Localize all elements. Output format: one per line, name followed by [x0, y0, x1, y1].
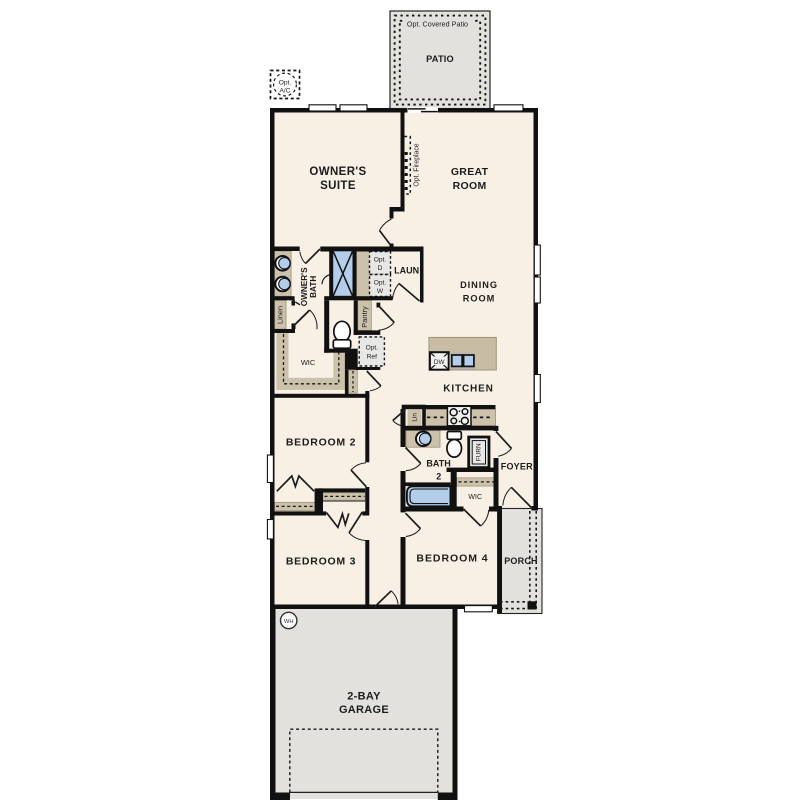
- svg-text:WIC: WIC: [468, 494, 482, 501]
- svg-text:BATH: BATH: [309, 276, 318, 298]
- svg-text:FURN: FURN: [476, 443, 483, 461]
- svg-text:2-BAY: 2-BAY: [347, 690, 381, 702]
- svg-text:Opt.: Opt.: [374, 280, 387, 287]
- svg-text:2: 2: [436, 471, 441, 481]
- svg-text:ROOM: ROOM: [463, 294, 495, 304]
- svg-text:Opt. Fireplace: Opt. Fireplace: [413, 143, 420, 186]
- svg-text:GARAGE: GARAGE: [339, 704, 389, 716]
- svg-text:FOYER: FOYER: [501, 461, 533, 471]
- svg-text:Opt. Covered Patio: Opt. Covered Patio: [407, 20, 468, 29]
- svg-text:ROOM: ROOM: [453, 180, 487, 192]
- svg-text:WIC: WIC: [301, 358, 316, 367]
- svg-text:WH: WH: [284, 619, 294, 625]
- svg-text:Ref: Ref: [367, 354, 377, 361]
- svg-text:LAUN: LAUN: [394, 265, 419, 275]
- svg-text:Opt.: Opt.: [366, 345, 379, 352]
- svg-text:BATH: BATH: [426, 459, 450, 469]
- svg-text:Opt.: Opt.: [279, 80, 292, 87]
- svg-text:W: W: [377, 288, 384, 295]
- svg-text:OWNER'S: OWNER'S: [309, 166, 366, 178]
- svg-text:DINING: DINING: [460, 280, 498, 290]
- svg-text:D: D: [378, 265, 383, 272]
- svg-text:GREAT: GREAT: [451, 166, 489, 178]
- svg-text:KITCHEN: KITCHEN: [443, 383, 493, 394]
- svg-text:SUITE: SUITE: [320, 180, 356, 192]
- svg-text:A/C: A/C: [280, 88, 291, 95]
- svg-text:Lin: Lin: [411, 413, 418, 422]
- svg-text:Linen: Linen: [276, 306, 285, 324]
- svg-text:OWNER'S: OWNER'S: [300, 267, 309, 306]
- svg-text:DW: DW: [434, 359, 446, 366]
- svg-text:Opt.: Opt.: [374, 257, 387, 264]
- svg-text:PATIO: PATIO: [426, 54, 454, 64]
- svg-text:PORCH: PORCH: [504, 556, 538, 566]
- svg-text:BEDROOM 3: BEDROOM 3: [286, 556, 356, 568]
- svg-text:Pantry: Pantry: [360, 306, 369, 328]
- svg-text:BEDROOM 4: BEDROOM 4: [416, 553, 488, 565]
- svg-text:BEDROOM 2: BEDROOM 2: [286, 437, 356, 449]
